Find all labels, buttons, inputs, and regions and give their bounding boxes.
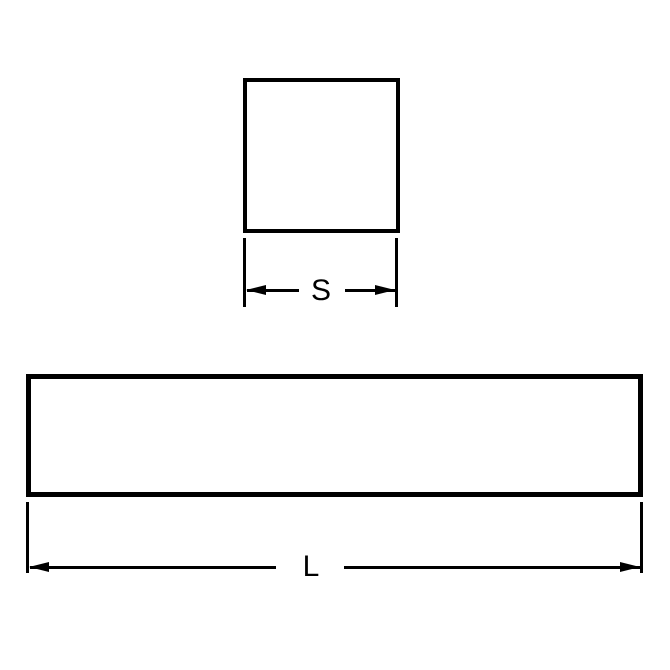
arrowhead-left-icon: [246, 285, 266, 295]
l-dimension-line-left-segment: [30, 566, 276, 569]
arrowhead-left-icon: [29, 562, 49, 572]
l-dimension-extension-line-right: [640, 502, 643, 573]
l-dimension-label: L: [297, 552, 326, 582]
s-dimension-extension-line-right: [395, 238, 398, 307]
arrowhead-right-icon: [375, 285, 395, 295]
arrowhead-right-icon: [620, 562, 640, 572]
s-dimension-extension-line-left: [243, 238, 246, 307]
bar-side-view-outline: [26, 374, 643, 497]
s-dimension-label: S: [305, 276, 337, 306]
square-cross-section-outline: [243, 78, 400, 233]
l-dimension-line-right-segment: [344, 566, 640, 569]
technical-drawing-canvas: S L: [0, 0, 670, 670]
